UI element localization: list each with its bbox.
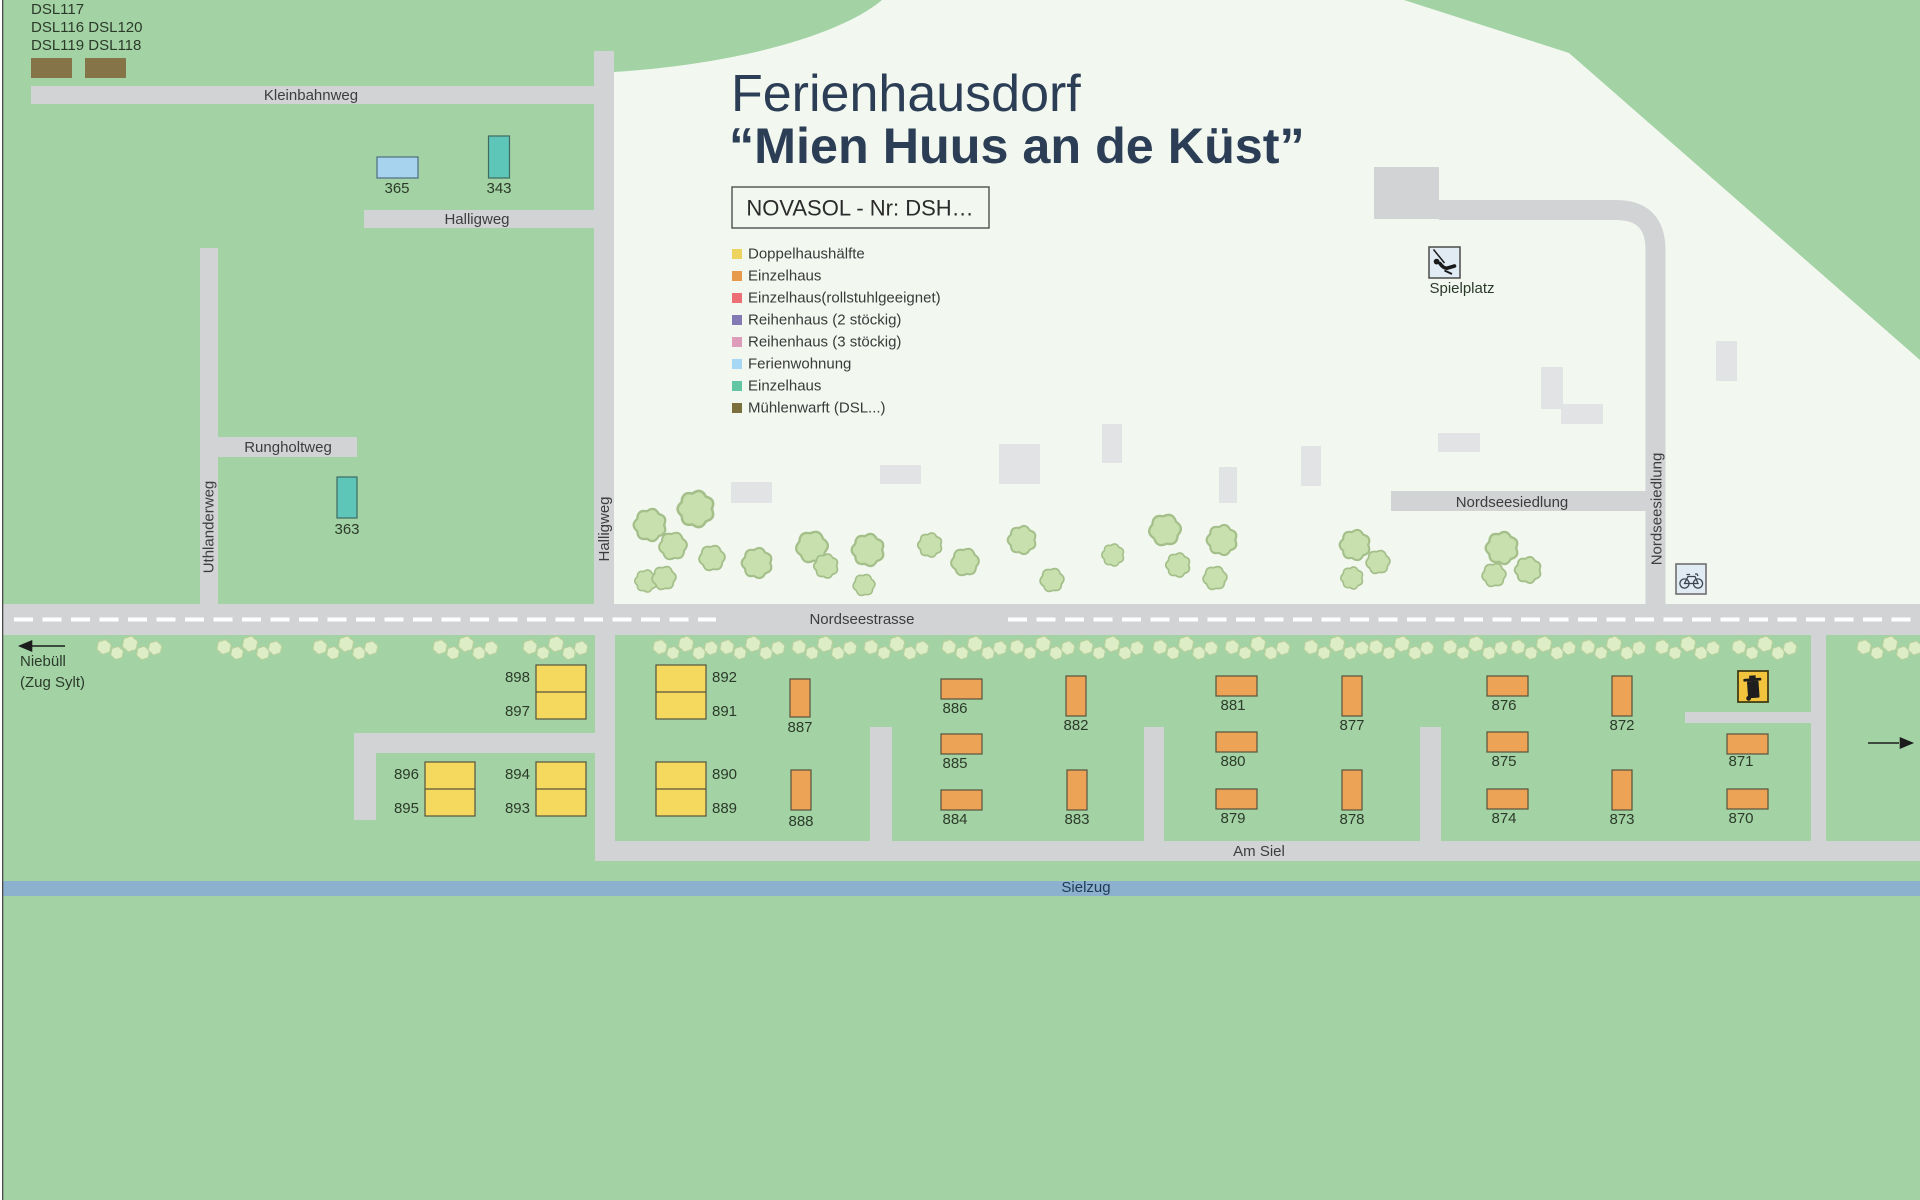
svg-text:Halligweg: Halligweg bbox=[444, 211, 509, 228]
svg-text:874: 874 bbox=[1491, 810, 1516, 827]
svg-text:882: 882 bbox=[1063, 717, 1088, 734]
svg-text:883: 883 bbox=[1064, 811, 1089, 828]
svg-text:Doppelhaushälfte: Doppelhaushälfte bbox=[748, 246, 865, 263]
svg-text:892: 892 bbox=[712, 669, 737, 686]
svg-text:884: 884 bbox=[942, 811, 967, 828]
svg-text:890: 890 bbox=[712, 766, 737, 783]
svg-text:889: 889 bbox=[712, 800, 737, 817]
svg-text:876: 876 bbox=[1491, 697, 1516, 714]
svg-text:Ferienhausdorf: Ferienhausdorf bbox=[731, 65, 1081, 123]
svg-text:Mühlenwarft (DSL...): Mühlenwarft (DSL...) bbox=[748, 400, 886, 417]
svg-text:870: 870 bbox=[1728, 810, 1753, 827]
svg-text:DSL119 DSL118: DSL119 DSL118 bbox=[31, 37, 141, 54]
svg-text:880: 880 bbox=[1220, 753, 1245, 770]
svg-text:NOVASOL - Nr: DSH…: NOVASOL - Nr: DSH… bbox=[746, 196, 973, 221]
svg-text:Spielplatz: Spielplatz bbox=[1429, 280, 1494, 297]
svg-text:Am Siel: Am Siel bbox=[1233, 843, 1285, 860]
svg-text:Reihenhaus (3 stöckig): Reihenhaus (3 stöckig) bbox=[748, 334, 901, 351]
svg-text:Einzelhaus: Einzelhaus bbox=[748, 378, 821, 395]
svg-text:898: 898 bbox=[505, 669, 530, 686]
svg-text:DSL117: DSL117 bbox=[31, 1, 84, 18]
svg-text:881: 881 bbox=[1220, 697, 1245, 714]
svg-text:895: 895 bbox=[394, 800, 419, 817]
svg-text:891: 891 bbox=[712, 703, 737, 720]
svg-text:Einzelhaus(rollstuhlgeeignet): Einzelhaus(rollstuhlgeeignet) bbox=[748, 290, 941, 307]
svg-text:Reihenhaus (2 stöckig): Reihenhaus (2 stöckig) bbox=[748, 312, 901, 329]
svg-text:Ferienwohnung: Ferienwohnung bbox=[748, 356, 851, 373]
svg-text:Niebüll: Niebüll bbox=[20, 653, 66, 670]
svg-text:“Mien Huus an de Küst”: “Mien Huus an de Küst” bbox=[729, 117, 1305, 174]
svg-text:878: 878 bbox=[1339, 811, 1364, 828]
svg-text:Kleinbahnweg: Kleinbahnweg bbox=[264, 87, 358, 104]
svg-text:888: 888 bbox=[788, 813, 813, 830]
svg-text:894: 894 bbox=[505, 766, 530, 783]
svg-text:Uthlanderweg: Uthlanderweg bbox=[201, 481, 218, 574]
svg-text:DSL116 DSL120: DSL116 DSL120 bbox=[31, 19, 142, 36]
svg-text:343: 343 bbox=[486, 180, 511, 197]
svg-text:Nordseesiedlung: Nordseesiedlung bbox=[1456, 494, 1569, 511]
svg-text:885: 885 bbox=[942, 755, 967, 772]
svg-text:Nordseesiedlung: Nordseesiedlung bbox=[1649, 453, 1666, 566]
svg-text:871: 871 bbox=[1728, 753, 1753, 770]
svg-text:363: 363 bbox=[334, 521, 359, 538]
svg-text:887: 887 bbox=[787, 719, 812, 736]
svg-text:893: 893 bbox=[505, 800, 530, 817]
svg-text:(Zug Sylt): (Zug Sylt) bbox=[20, 674, 85, 691]
svg-text:Nordseestrasse: Nordseestrasse bbox=[809, 611, 914, 628]
svg-text:879: 879 bbox=[1220, 810, 1245, 827]
svg-text:Halligweg: Halligweg bbox=[596, 496, 613, 561]
svg-text:365: 365 bbox=[384, 180, 409, 197]
svg-text:Rungholtweg: Rungholtweg bbox=[244, 439, 332, 456]
svg-text:Einzelhaus: Einzelhaus bbox=[748, 268, 821, 285]
svg-text:896: 896 bbox=[394, 766, 419, 783]
svg-text:875: 875 bbox=[1491, 753, 1516, 770]
svg-text:897: 897 bbox=[505, 703, 530, 720]
svg-text:877: 877 bbox=[1339, 717, 1364, 734]
svg-text:873: 873 bbox=[1609, 811, 1634, 828]
svg-text:886: 886 bbox=[942, 700, 967, 717]
svg-text:872: 872 bbox=[1609, 717, 1634, 734]
svg-text:Sielzug: Sielzug bbox=[1061, 879, 1110, 896]
